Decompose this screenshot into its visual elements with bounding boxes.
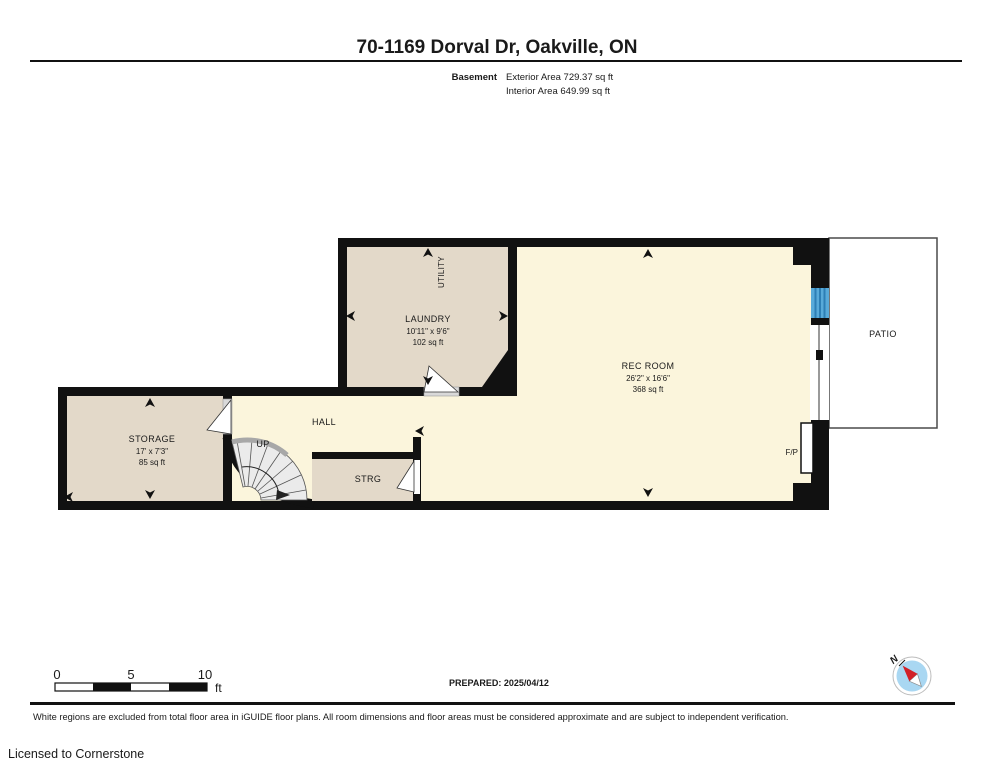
scale-unit: ft [215, 681, 222, 695]
interior-area-label: Interior Area 649.99 sq ft [506, 86, 610, 97]
scale-label-0: 0 [53, 667, 60, 682]
fireplace-label: F/P [786, 448, 798, 457]
prepared-date: PREPARED: 2025/04/12 [449, 678, 549, 688]
rec-room-dims: 26'2" x 16'6" [626, 374, 670, 383]
fireplace [801, 423, 813, 473]
wall-block-bottom-right [793, 483, 811, 510]
laundry-area: 102 sq ft [413, 338, 444, 347]
hall-label: HALL [312, 417, 336, 427]
page-title: 70-1169 Dorval Dr, Oakville, ON [357, 37, 638, 58]
scale-bar: 0 5 10 ft [53, 667, 222, 695]
scale-bar-seg2 [169, 683, 207, 691]
utility-label: UTILITY [437, 256, 446, 288]
strg-top-wall [312, 452, 413, 459]
strg-label: STRG [355, 474, 382, 484]
storage-area: 85 sq ft [139, 458, 166, 467]
rec-room-area: 368 sq ft [633, 385, 664, 394]
floor-plan-page: 70-1169 Dorval Dr, Oakville, ON Basement… [0, 0, 993, 768]
floor-label: Basement [452, 72, 498, 83]
exterior-area-label: Exterior Area 729.37 sq ft [506, 72, 614, 83]
floor-plan-canvas: 70-1169 Dorval Dr, Oakville, ON Basement… [0, 0, 993, 768]
strg-door-opening [414, 460, 420, 494]
patio-label: PATIO [869, 329, 897, 339]
license-text: Licensed to Cornerstone [8, 747, 144, 761]
footer-divider [30, 702, 955, 705]
disclaimer-text: White regions are excluded from total fl… [33, 712, 789, 722]
scale-label-5: 5 [127, 667, 134, 682]
laundry-dims: 10'11" x 9'6" [406, 327, 449, 336]
scale-bar-seg1 [93, 683, 131, 691]
title-divider [30, 60, 962, 62]
sliding-door-handle [816, 350, 823, 360]
laundry-name: LAUNDRY [405, 314, 451, 324]
wall-block-top-right [793, 238, 811, 265]
storage-name: STORAGE [129, 434, 176, 444]
up-label: UP [256, 439, 269, 449]
storage-dims: 17' x 7'3" [136, 447, 168, 456]
rec-room-name: REC ROOM [622, 361, 675, 371]
compass-icon: N [888, 653, 931, 695]
scale-label-10: 10 [198, 667, 212, 682]
